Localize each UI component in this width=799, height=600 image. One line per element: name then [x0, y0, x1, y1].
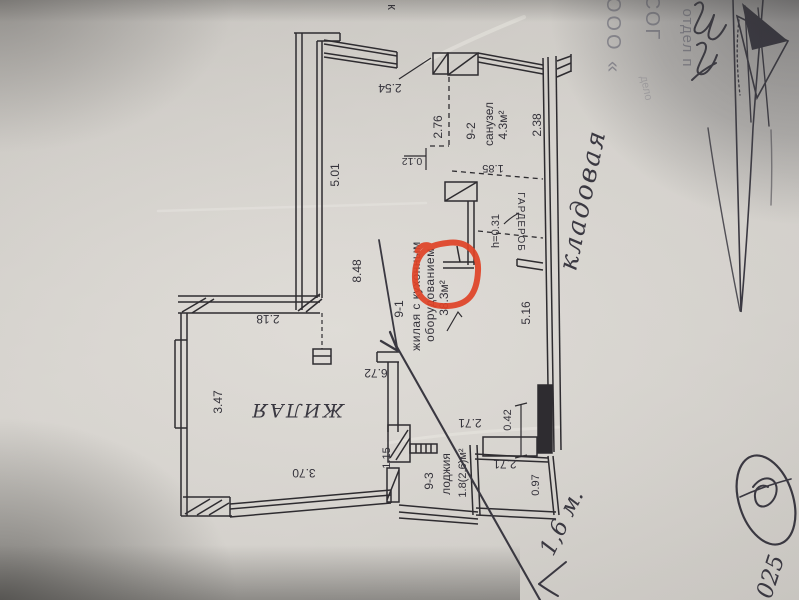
room3-number: 9-3: [422, 472, 436, 490]
dim-6-72: 6.72: [364, 366, 388, 380]
dim-3-70: 3.70: [292, 466, 316, 480]
zhilaya-left-wall: [175, 313, 187, 516]
dim-2-71-a: 2.71: [458, 416, 482, 430]
dim-2-76: 2.76: [431, 115, 445, 139]
zhilaya-bottom-wall: [181, 490, 391, 517]
note-corner-number: 025: [752, 552, 790, 600]
note-kladovaya: кладовая: [553, 127, 612, 274]
room1-name-line2: оборудованием: [423, 248, 437, 342]
dim-h-0-31: h=0.31: [490, 214, 502, 248]
dim-0-97: 0.97: [530, 474, 542, 495]
circled-initial: [726, 448, 799, 552]
room1-number: 9-1: [392, 300, 406, 318]
stamp-faint-delo: дело: [638, 75, 655, 102]
note-1-6-m: 1,6 м.: [535, 485, 589, 560]
corner-pen-strokes: [708, 0, 788, 312]
dim-3-47: 3.47: [211, 390, 225, 414]
wall-top-right: [478, 53, 543, 74]
wall-top-window: [324, 40, 397, 68]
dim-5-01: 5.01: [328, 163, 342, 187]
dim-8-48: 8.48: [350, 259, 364, 283]
lower-right-room-walls: [475, 385, 559, 519]
stamp-line-ooo: ООО «: [602, 0, 624, 75]
zhilaya-top-wall: [178, 294, 322, 313]
dim-2-18: 2.18: [256, 312, 280, 326]
label-zhilaya-handwritten: ЖИЛАЯ: [250, 399, 346, 421]
room2-area: 4.3м²: [496, 111, 510, 140]
dim-2-54: 2.54: [378, 81, 402, 95]
measure-arrow: [539, 562, 566, 596]
photo-of-floorplan: к 2.54 5.01 8.48 2.76 9-2 санузел 4.3м² …: [0, 0, 799, 600]
plan-labels: к 2.54 5.01 8.48 2.76 9-2 санузел 4.3м² …: [211, 4, 544, 497]
room3-name: лоджия: [439, 453, 453, 495]
dim-5-16: 5.16: [519, 301, 533, 325]
dim-1-85: 1.85: [482, 162, 503, 174]
label-top-cut-letter: к: [385, 4, 400, 10]
dim-1-15: 1.15: [381, 447, 393, 468]
dim-0-42: 0.42: [502, 409, 514, 430]
room2-name: санузел: [482, 102, 496, 146]
stamp: ООО « СОГ отдел п дело: [602, 0, 696, 102]
floorplan-svg: к 2.54 5.01 8.48 2.76 9-2 санузел 4.3м² …: [0, 0, 799, 600]
signature-scribble: [692, 2, 726, 80]
stamp-line-sog: СОГ: [641, 0, 663, 41]
plan-walls: [175, 33, 571, 524]
dim-0-12: 0.12: [402, 155, 423, 167]
wall-stub-right: [517, 259, 543, 270]
stamp-line-otdel: отдел п: [679, 8, 696, 67]
label-wardrobe: ГАРДЕРОБ: [515, 192, 526, 252]
room1-area: 38.3м²: [437, 280, 451, 316]
dim-2-38: 2.38: [530, 113, 544, 137]
dim-2-71-b: 2.71: [493, 457, 517, 471]
room2-number: 9-2: [464, 122, 478, 140]
